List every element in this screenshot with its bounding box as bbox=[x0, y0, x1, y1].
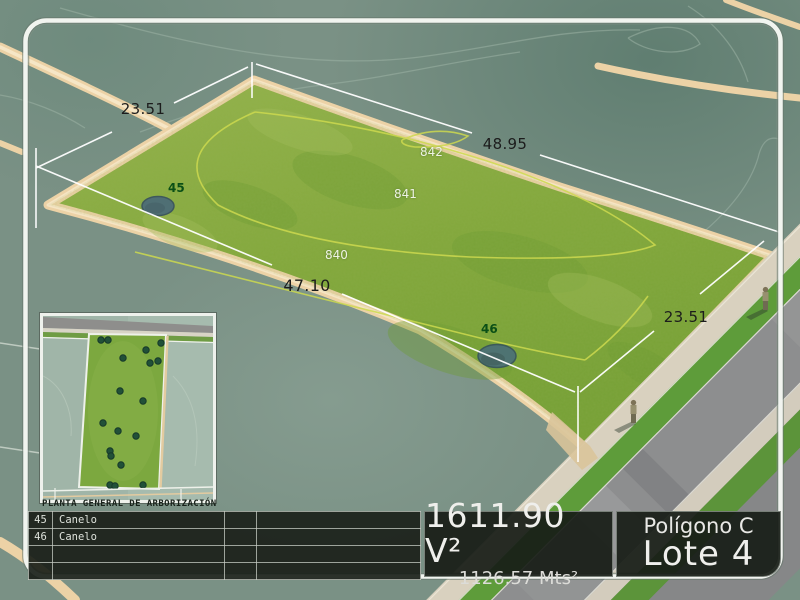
empty-cell bbox=[225, 546, 257, 563]
empty-cell bbox=[257, 563, 421, 580]
tree-label-46: 46 bbox=[481, 322, 498, 336]
tree-id-cell bbox=[29, 563, 53, 580]
dimension-label-ne: 48.95 bbox=[477, 135, 533, 153]
table-row bbox=[29, 546, 421, 563]
lot-3d-visualization: 23.51 48.95 47.10 23.51 842 841 840 45 4… bbox=[0, 0, 800, 600]
contour-label-842: 842 bbox=[420, 145, 443, 159]
empty-cell bbox=[257, 512, 421, 529]
table-row: 46 Canelo bbox=[29, 529, 421, 546]
tree-species-cell: Canelo bbox=[53, 512, 225, 529]
lot-id-panel: Polígono C Lote 4 bbox=[616, 511, 781, 577]
empty-cell bbox=[257, 529, 421, 546]
area-panel: 1611.90 V² 1126.57 Mts² bbox=[424, 511, 613, 577]
area-varas: 1611.90 V² bbox=[425, 499, 612, 568]
tree-id-cell: 45 bbox=[29, 512, 53, 529]
tree-id-cell bbox=[29, 546, 53, 563]
table-row bbox=[29, 563, 421, 580]
dimension-label-nw: 23.51 bbox=[115, 100, 171, 118]
inset-caption: PLANTA GENERAL DE ARBORIZACIÓN bbox=[42, 499, 422, 509]
empty-cell bbox=[225, 529, 257, 546]
arborization-table: 45 Canelo 46 Canelo bbox=[28, 511, 421, 580]
lote-label: Lote 4 bbox=[643, 537, 755, 573]
tree-label-45: 45 bbox=[168, 181, 185, 195]
empty-cell bbox=[257, 546, 421, 563]
empty-cell bbox=[225, 563, 257, 580]
area-meters: 1126.57 Mts² bbox=[459, 570, 578, 589]
dimension-label-se: 23.51 bbox=[658, 308, 714, 326]
contour-label-840: 840 bbox=[325, 248, 348, 262]
table-row: 45 Canelo bbox=[29, 512, 421, 529]
tree-species-cell bbox=[53, 546, 225, 563]
inset-map bbox=[40, 313, 216, 503]
tree-id-cell: 46 bbox=[29, 529, 53, 546]
tree-species-cell: Canelo bbox=[53, 529, 225, 546]
tree-species-cell bbox=[53, 563, 225, 580]
inset-plan-render bbox=[43, 316, 213, 500]
contour-label-841: 841 bbox=[394, 187, 417, 201]
scene-render bbox=[0, 0, 800, 600]
dimension-label-sw: 47.10 bbox=[279, 276, 335, 295]
empty-cell bbox=[225, 512, 257, 529]
